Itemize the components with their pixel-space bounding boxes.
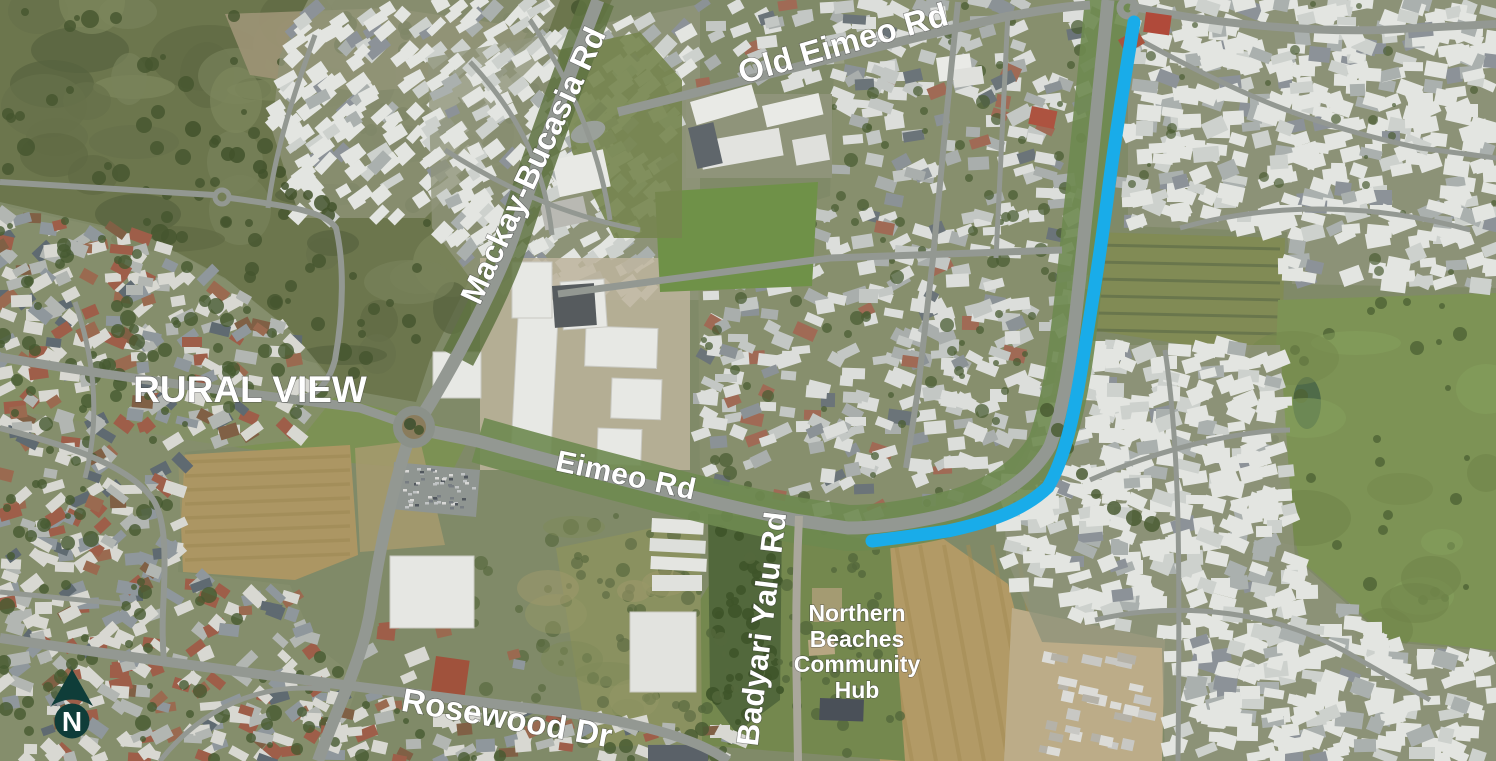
svg-text:N: N xyxy=(62,706,82,737)
svg-text:Northern: Northern xyxy=(808,600,905,626)
svg-text:RURAL VIEW: RURAL VIEW xyxy=(133,369,367,410)
svg-text:Hub: Hub xyxy=(835,677,880,703)
svg-text:Community: Community xyxy=(794,651,921,677)
svg-text:Beaches: Beaches xyxy=(810,626,905,652)
